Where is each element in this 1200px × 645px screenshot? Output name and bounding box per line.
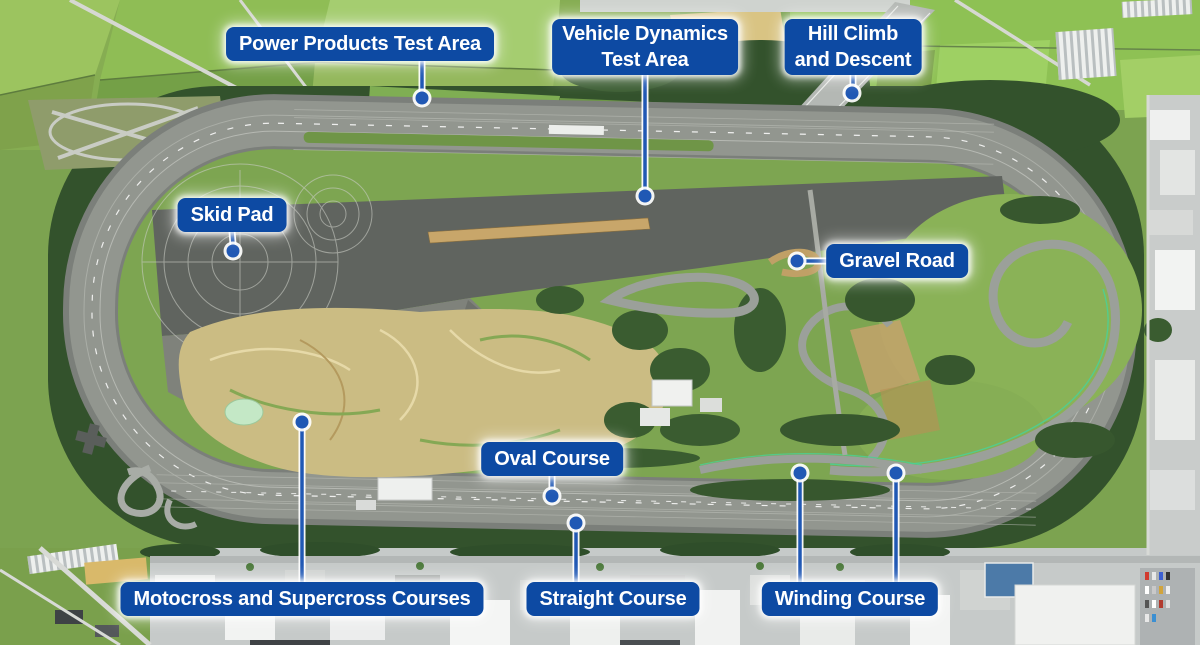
map-label-straight-course: Straight Course — [526, 582, 699, 616]
map-label-power-products-test-area: Power Products Test Area — [226, 27, 494, 61]
dot-power-products — [416, 92, 429, 105]
aerial-map-figure: Power Products Test Area Vehicle Dynamic… — [0, 0, 1200, 645]
dot-motocross — [296, 416, 309, 429]
dot-winding-course-2 — [890, 467, 903, 480]
leader-lines — [232, 62, 896, 584]
map-label-hill-climb-and-descent: Hill Climb and Descent — [785, 19, 922, 75]
dot-winding-course-1 — [794, 467, 807, 480]
map-label-oval-course: Oval Course — [481, 442, 623, 476]
map-label-winding-course: Winding Course — [762, 582, 938, 616]
dot-vehicle-dynamics — [639, 190, 652, 203]
dot-hill-climb — [846, 87, 859, 100]
map-label-skid-pad: Skid Pad — [178, 198, 287, 232]
map-label-gravel-road: Gravel Road — [826, 244, 968, 278]
map-label-motocross-and-supercross-courses: Motocross and Supercross Courses — [120, 582, 483, 616]
dot-gravel-road — [791, 255, 804, 268]
label-leaders — [0, 0, 1200, 645]
dot-straight-course — [570, 517, 583, 530]
leader-casings — [232, 62, 896, 584]
dot-oval-course — [546, 490, 559, 503]
dot-skid-pad — [227, 245, 240, 258]
map-label-vehicle-dynamics-test-area: Vehicle Dynamics Test Area — [552, 19, 738, 75]
